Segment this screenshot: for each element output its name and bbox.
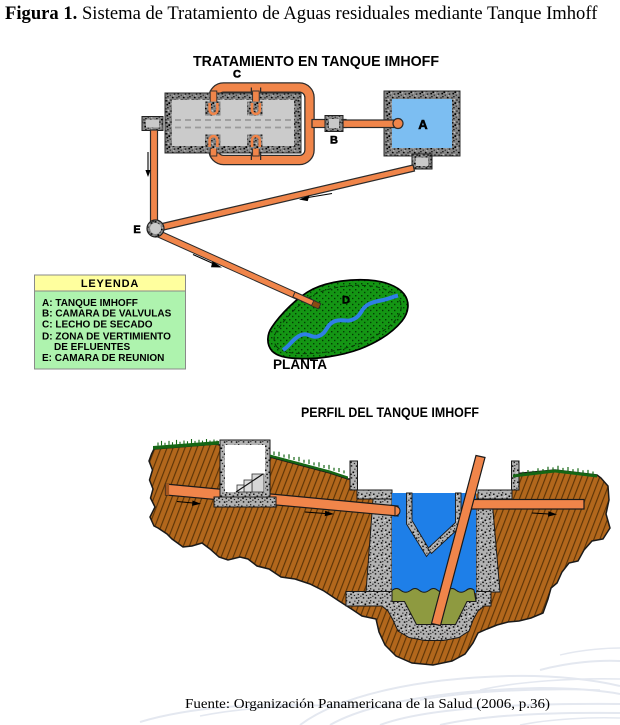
svg-text:Fuente: Organización Panameric: Fuente: Organización Panamericana de la …: [185, 697, 550, 712]
svg-text:D: ZONA DE VERTIMIENTO: D: ZONA DE VERTIMIENTO: [42, 332, 171, 343]
svg-text:TRATAMIENTO EN TANQUE IMHOFF: TRATAMIENTO EN TANQUE IMHOFF: [193, 53, 439, 70]
svg-text:C: C: [233, 69, 241, 81]
svg-text:DE EFLUENTES: DE EFLUENTES: [54, 342, 130, 353]
svg-text:LEYENDA: LEYENDA: [81, 278, 139, 290]
svg-text:C: LECHO DE SECADO: C: LECHO DE SECADO: [42, 320, 153, 331]
svg-text:PERFIL DEL TANQUE IMHOFF: PERFIL DEL TANQUE IMHOFF: [301, 404, 479, 420]
svg-text:B: CAMARA DE VALVULAS: B: CAMARA DE VALVULAS: [42, 309, 172, 320]
svg-text:D: D: [342, 295, 350, 307]
svg-text:PLANTA: PLANTA: [273, 357, 327, 372]
svg-text:E: CAMARA DE REUNION: E: CAMARA DE REUNION: [42, 353, 164, 364]
svg-text:B: B: [330, 135, 338, 147]
svg-text:A: TANQUE IMHOFF: A: TANQUE IMHOFF: [42, 298, 138, 309]
svg-text:E: E: [133, 224, 140, 236]
svg-text:A: A: [418, 117, 428, 132]
